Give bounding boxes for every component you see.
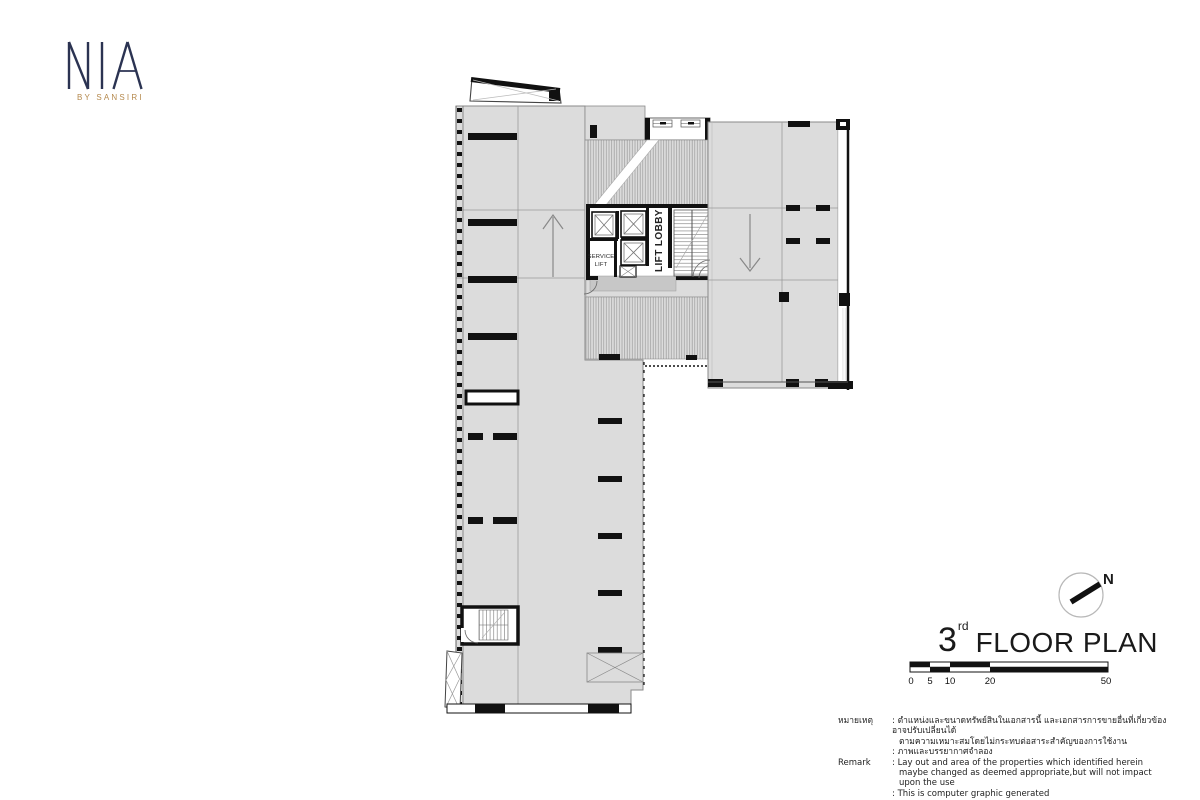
- service-lift-label-1: SERVICE: [588, 254, 615, 260]
- right-wing: [693, 119, 853, 390]
- north-label: N: [1103, 571, 1114, 588]
- nia-logo: BY SANSIRI: [69, 42, 144, 102]
- lobby-landing: [590, 276, 676, 291]
- remark-label-th: หมายเหตุ: [838, 716, 888, 737]
- scale-bar: 0 5 10 20 50: [908, 662, 1111, 687]
- title-block: 3 rd FLOOR PLAN: [938, 622, 1158, 660]
- top-connector: [585, 106, 645, 140]
- logo-brand-lines: [69, 42, 142, 89]
- remark-en-line2: maybe changed as deemed appropriate,but …: [892, 768, 1168, 789]
- core-stair: [674, 210, 712, 278]
- shaft-x-bottom: [587, 653, 643, 682]
- floor-ordinal: rd: [958, 619, 969, 633]
- west-stair: [461, 607, 518, 644]
- service-lift-label-2: LIFT: [595, 262, 608, 268]
- shaft-x-left: [445, 651, 462, 709]
- floor-plan-drawing: BY SANSIRI: [0, 0, 1200, 800]
- machine-room: [645, 118, 710, 140]
- north-indicator: N: [1059, 571, 1114, 617]
- floor-plan-page: BY SANSIRI: [0, 0, 1200, 800]
- south-wall: [447, 704, 631, 713]
- lift-core: SERVICE LIFT LIFT LOBBY: [584, 204, 714, 297]
- scale-label-5: 5: [927, 676, 932, 687]
- lower-ramp: [586, 297, 710, 366]
- remark-en-line1: : Lay out and area of the properties whi…: [892, 758, 1168, 768]
- scale-label-20: 20: [985, 676, 996, 687]
- roof-canopy: [470, 78, 561, 103]
- remark-th-line3: : ภาพและบรรยากาศจำลอง: [892, 747, 1168, 757]
- scale-label-0: 0: [908, 676, 913, 687]
- remark-block: หมายเหตุ : ตำแหน่งและขนาดทรัพย์สินในเอกส…: [838, 716, 1168, 799]
- floor-number: 3: [938, 622, 957, 658]
- scale-label-50: 50: [1101, 676, 1112, 687]
- floor-title-text: FLOOR PLAN: [976, 626, 1158, 660]
- lift-lobby-label: LIFT LOBBY: [654, 209, 665, 272]
- compass-needle: [1071, 584, 1100, 602]
- upper-ramp: [587, 140, 708, 205]
- scale-label-10: 10: [945, 676, 956, 687]
- remark-label-en: Remark: [838, 758, 888, 768]
- small-shaft: [620, 266, 636, 277]
- remark-th-line2: ตามความเหมาะสมโดยไม่กระทบต่อสาระสำคัญของ…: [892, 737, 1168, 747]
- remark-th-line1: : ตำแหน่งและขนาดทรัพย์สินในเอกสารนี้ และ…: [892, 716, 1168, 737]
- facade-louvre-strip: [841, 308, 847, 380]
- remark-en-line3: : This is computer graphic generated: [892, 789, 1168, 799]
- logo-subtitle: BY SANSIRI: [77, 93, 144, 102]
